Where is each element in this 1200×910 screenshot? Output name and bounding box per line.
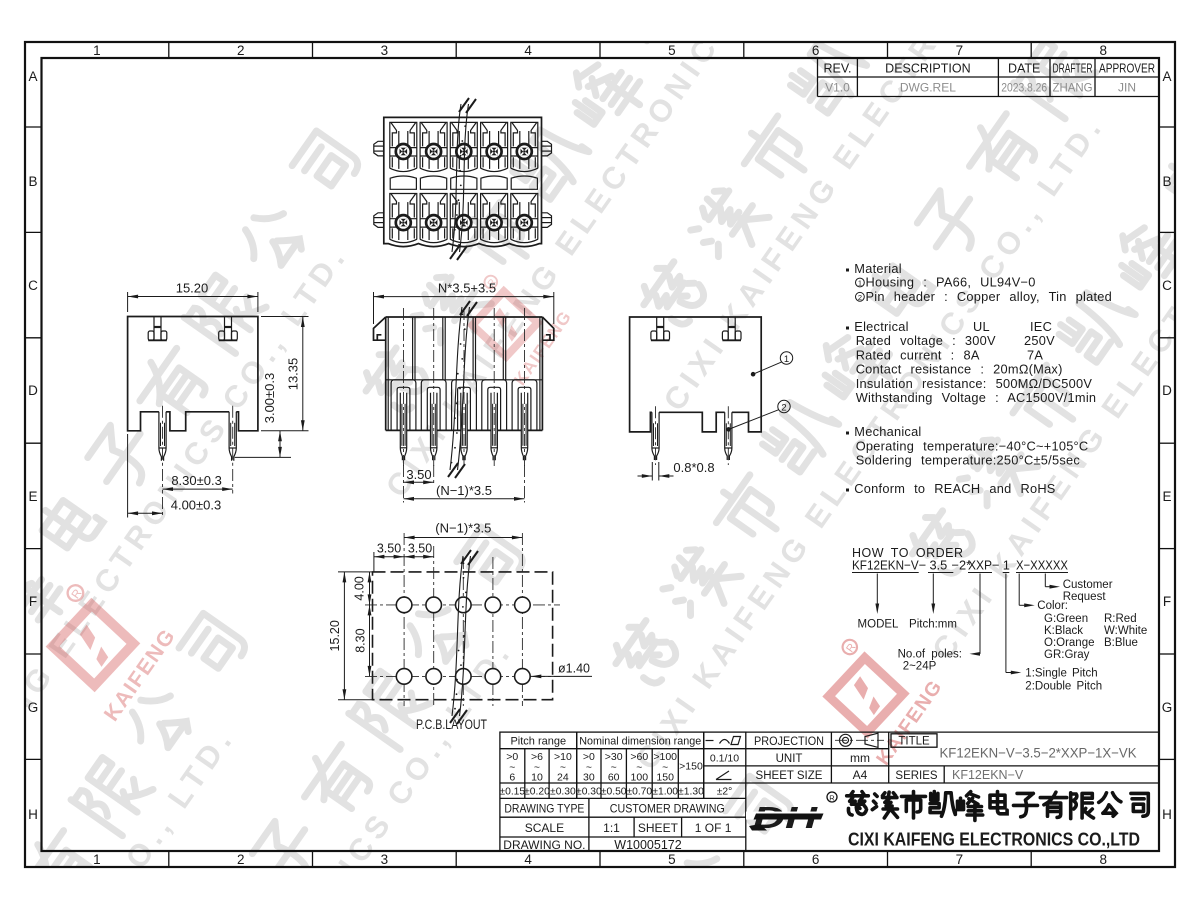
svg-text:(N−1)*3.5: (N−1)*3.5 [435, 521, 491, 536]
svg-text:SHEET: SHEET [638, 821, 679, 835]
svg-text:DESCRIPTION: DESCRIPTION [885, 62, 970, 76]
svg-text:−: − [992, 558, 999, 573]
svg-text:IEC: IEC [1030, 319, 1052, 334]
svg-text:4.00±0.3: 4.00±0.3 [171, 498, 222, 513]
svg-text:Mechanical: Mechanical [854, 424, 921, 439]
svg-text:±0.30: ±0.30 [550, 786, 576, 797]
svg-text:6: 6 [812, 43, 820, 58]
svg-text:KAIFENG: KAIFENG [99, 624, 180, 726]
svg-text:4: 4 [524, 43, 532, 58]
svg-text:7A: 7A [1027, 347, 1043, 362]
svg-text:SERIES: SERIES [895, 770, 938, 782]
svg-text:5: 5 [668, 852, 676, 867]
svg-text:±0.70: ±0.70 [626, 786, 652, 797]
svg-text:8: 8 [1099, 852, 1107, 867]
svg-text:Pitch range: Pitch range [510, 735, 566, 747]
svg-text:No.of poles:: No.of poles: [898, 649, 962, 661]
svg-text:E: E [1162, 489, 1171, 504]
svg-text:CUSTOMER DRAWING: CUSTOMER DRAWING [610, 801, 725, 815]
svg-text:APPROVER: APPROVER [1099, 62, 1155, 76]
svg-text:H: H [1162, 807, 1172, 822]
svg-text:24: 24 [557, 772, 569, 784]
svg-text:Customer: Customer [1063, 579, 1113, 591]
svg-text:Nominal dimension range: Nominal dimension range [579, 735, 701, 747]
svg-text:SHEET SIZE: SHEET SIZE [756, 770, 823, 782]
svg-text:G: G [1162, 700, 1173, 715]
svg-text:JIN: JIN [1118, 81, 1136, 95]
svg-text:0.1/10: 0.1/10 [710, 753, 739, 765]
svg-text:13.35: 13.35 [285, 358, 300, 391]
svg-text:Pitch:mm: Pitch:mm [909, 619, 957, 631]
svg-text:1: 1 [858, 279, 862, 288]
svg-text:X−XXXXX: X−XXXXX [1016, 558, 1068, 573]
svg-text:V1.0: V1.0 [825, 81, 850, 95]
svg-text:2: 2 [858, 293, 862, 302]
svg-text:4.00: 4.00 [353, 576, 367, 600]
svg-text:Request: Request [1063, 591, 1107, 603]
svg-text:15.20: 15.20 [328, 620, 342, 651]
svg-text:3: 3 [381, 43, 389, 58]
svg-text:DRAWING TYPE: DRAWING TYPE [504, 801, 584, 815]
svg-text:1 OF 1: 1 OF 1 [695, 821, 732, 835]
svg-text:2: 2 [781, 403, 786, 414]
svg-text:KF12EKN−V−3.5−2*XXP−1X−VK: KF12EKN−V−3.5−2*XXP−1X−VK [940, 745, 1138, 761]
svg-text:P.C.B.LAYOUT: P.C.B.LAYOUT [416, 717, 487, 732]
svg-text:R: R [829, 794, 835, 803]
svg-text:mm: mm [850, 751, 870, 765]
svg-text:Pin header : Copper alloy, Tin: Pin header : Copper alloy, Tin plated [866, 289, 1113, 304]
svg-text:±1.00: ±1.00 [652, 786, 678, 797]
svg-text:6: 6 [812, 852, 820, 867]
svg-text:Rated current : 8A: Rated current : 8A [856, 347, 980, 362]
svg-text:3.00±0.3: 3.00±0.3 [262, 373, 277, 424]
svg-text:D: D [28, 383, 38, 398]
svg-text:6: 6 [509, 772, 515, 784]
svg-text:2:Double Pitch: 2:Double Pitch [1025, 681, 1102, 693]
svg-text:B: B [1162, 174, 1171, 189]
svg-text:±0.50: ±0.50 [601, 786, 627, 797]
svg-text:Electrical: Electrical [854, 319, 908, 334]
svg-text:KF12EKN−V: KF12EKN−V [952, 768, 1024, 782]
svg-text:>150: >150 [679, 761, 703, 773]
svg-text:±0.15: ±0.15 [499, 786, 525, 797]
svg-text:250V: 250V [1024, 333, 1055, 348]
svg-text:60: 60 [608, 772, 620, 784]
svg-text:±1.30: ±1.30 [678, 786, 704, 797]
svg-text:DATE: DATE [1008, 62, 1040, 76]
svg-text:2: 2 [237, 43, 245, 58]
svg-text:G:Green: G:Green [1044, 613, 1088, 625]
svg-text:100: 100 [631, 772, 649, 784]
svg-text:DRAFTER: DRAFTER [1053, 62, 1093, 76]
svg-text:UL: UL [973, 319, 990, 334]
svg-text:Rated voltage : 300V: Rated voltage : 300V [856, 333, 996, 348]
svg-text:SCALE: SCALE [525, 821, 564, 835]
svg-text:G: G [28, 700, 39, 715]
svg-text:R:Red: R:Red [1104, 613, 1137, 625]
svg-text:7: 7 [956, 43, 964, 58]
svg-text:KAIFENG: KAIFENG [872, 676, 947, 770]
svg-text:CIXI KAIFENG ELECTRONICS CO.,: CIXI KAIFENG ELECTRONICS CO., LTD. [492, 0, 974, 21]
svg-text:A4: A4 [853, 768, 868, 782]
svg-text:W10005172: W10005172 [614, 838, 681, 852]
svg-text:CIXI KAIFENG ELECTRONICS CO.,: CIXI KAIFENG ELECTRONICS CO., LTD. [306, 883, 788, 910]
svg-text:2~24P: 2~24P [903, 661, 937, 673]
svg-text:3.50: 3.50 [408, 542, 432, 556]
svg-text:D: D [1162, 383, 1172, 398]
svg-text:ZHANG: ZHANG [1053, 81, 1093, 95]
svg-text:8: 8 [1099, 43, 1107, 58]
svg-text:30: 30 [583, 772, 595, 784]
svg-text:W:White: W:White [1104, 625, 1147, 637]
svg-text:CIXI KAIFENG ELECTRONICS CO.,L: CIXI KAIFENG ELECTRONICS CO.,LTD [848, 829, 1140, 850]
svg-text:−: − [919, 558, 926, 573]
svg-text:REV.: REV. [823, 62, 851, 76]
svg-text:DWG.REL: DWG.REL [900, 81, 956, 95]
svg-text:O:Orange: O:Orange [1044, 637, 1095, 649]
svg-text:Insulation resistance: 500MΩ/D: Insulation resistance: 500MΩ/DC500V [856, 376, 1093, 391]
svg-text:K:Black: K:Black [1044, 625, 1083, 637]
svg-text:F: F [1163, 594, 1171, 609]
svg-text:±0.20: ±0.20 [524, 786, 550, 797]
svg-text:N*3.5+3.5: N*3.5+3.5 [438, 281, 496, 296]
svg-text:1: 1 [784, 354, 789, 365]
svg-text:8.30: 8.30 [354, 628, 368, 652]
svg-text:F: F [29, 594, 37, 609]
svg-text:TITLE: TITLE [898, 735, 930, 747]
svg-text:2: 2 [237, 852, 245, 867]
svg-text:MODEL: MODEL [858, 619, 900, 631]
svg-text:GR:Gray: GR:Gray [1044, 649, 1090, 661]
svg-text:0.8*0.8: 0.8*0.8 [673, 460, 714, 475]
svg-text:1:Single Pitch: 1:Single Pitch [1025, 668, 1097, 680]
svg-text:±0.30: ±0.30 [576, 786, 602, 797]
svg-text:A: A [28, 69, 37, 84]
svg-text:C: C [28, 278, 38, 293]
svg-text:B: B [28, 174, 37, 189]
svg-text:3.5: 3.5 [930, 558, 948, 573]
svg-text:15.20: 15.20 [176, 281, 209, 296]
svg-text:8.30±0.3: 8.30±0.3 [171, 473, 222, 488]
svg-text:Housing : PA66, UL94V−0: Housing : PA66, UL94V−0 [866, 275, 1036, 290]
svg-text:PROJECTION: PROJECTION [754, 736, 824, 748]
svg-text:1: 1 [93, 852, 101, 867]
svg-text:±2°: ±2° [717, 786, 733, 797]
svg-text:1:1: 1:1 [603, 821, 620, 835]
svg-text:ø1.40: ø1.40 [558, 661, 590, 675]
svg-text:4: 4 [524, 852, 532, 867]
svg-text:7: 7 [956, 852, 964, 867]
svg-text:UNIT: UNIT [776, 753, 803, 765]
svg-text:C: C [1162, 278, 1172, 293]
svg-text:3: 3 [381, 852, 389, 867]
svg-text:Operating temperature:−40°C~+1: Operating temperature:−40°C~+105°C [856, 439, 1089, 454]
svg-text:5: 5 [668, 43, 676, 58]
svg-text:H: H [28, 807, 38, 822]
svg-text:KF12EKN−V: KF12EKN−V [852, 558, 919, 573]
svg-text:150: 150 [656, 772, 674, 784]
svg-text:Conform to REACH and RoHS: Conform to REACH and RoHS [854, 481, 1055, 496]
svg-text:E: E [28, 489, 37, 504]
svg-text:2023.8.26: 2023.8.26 [1001, 81, 1047, 95]
svg-text:3.50: 3.50 [406, 467, 431, 482]
svg-text:3.50: 3.50 [377, 542, 401, 556]
svg-text:1: 1 [1003, 558, 1010, 573]
svg-text:Withstanding Voltage : AC1500V: Withstanding Voltage : AC1500V/1min [856, 390, 1097, 405]
svg-text:Contact resistance : 20mΩ(Max): Contact resistance : 20mΩ(Max) [856, 362, 1063, 377]
svg-text:10: 10 [531, 772, 543, 784]
svg-text:XXP: XXP [968, 558, 992, 573]
svg-text:Soldering temperature:250°C±5/: Soldering temperature:250°C±5/5sec [856, 453, 1081, 468]
svg-text:1: 1 [93, 43, 101, 58]
svg-text:A: A [1162, 69, 1171, 84]
svg-text:B:Blue: B:Blue [1104, 637, 1138, 649]
svg-text:DRAWING NO.: DRAWING NO. [503, 838, 585, 852]
svg-text:(N−1)*3.5: (N−1)*3.5 [436, 483, 492, 498]
